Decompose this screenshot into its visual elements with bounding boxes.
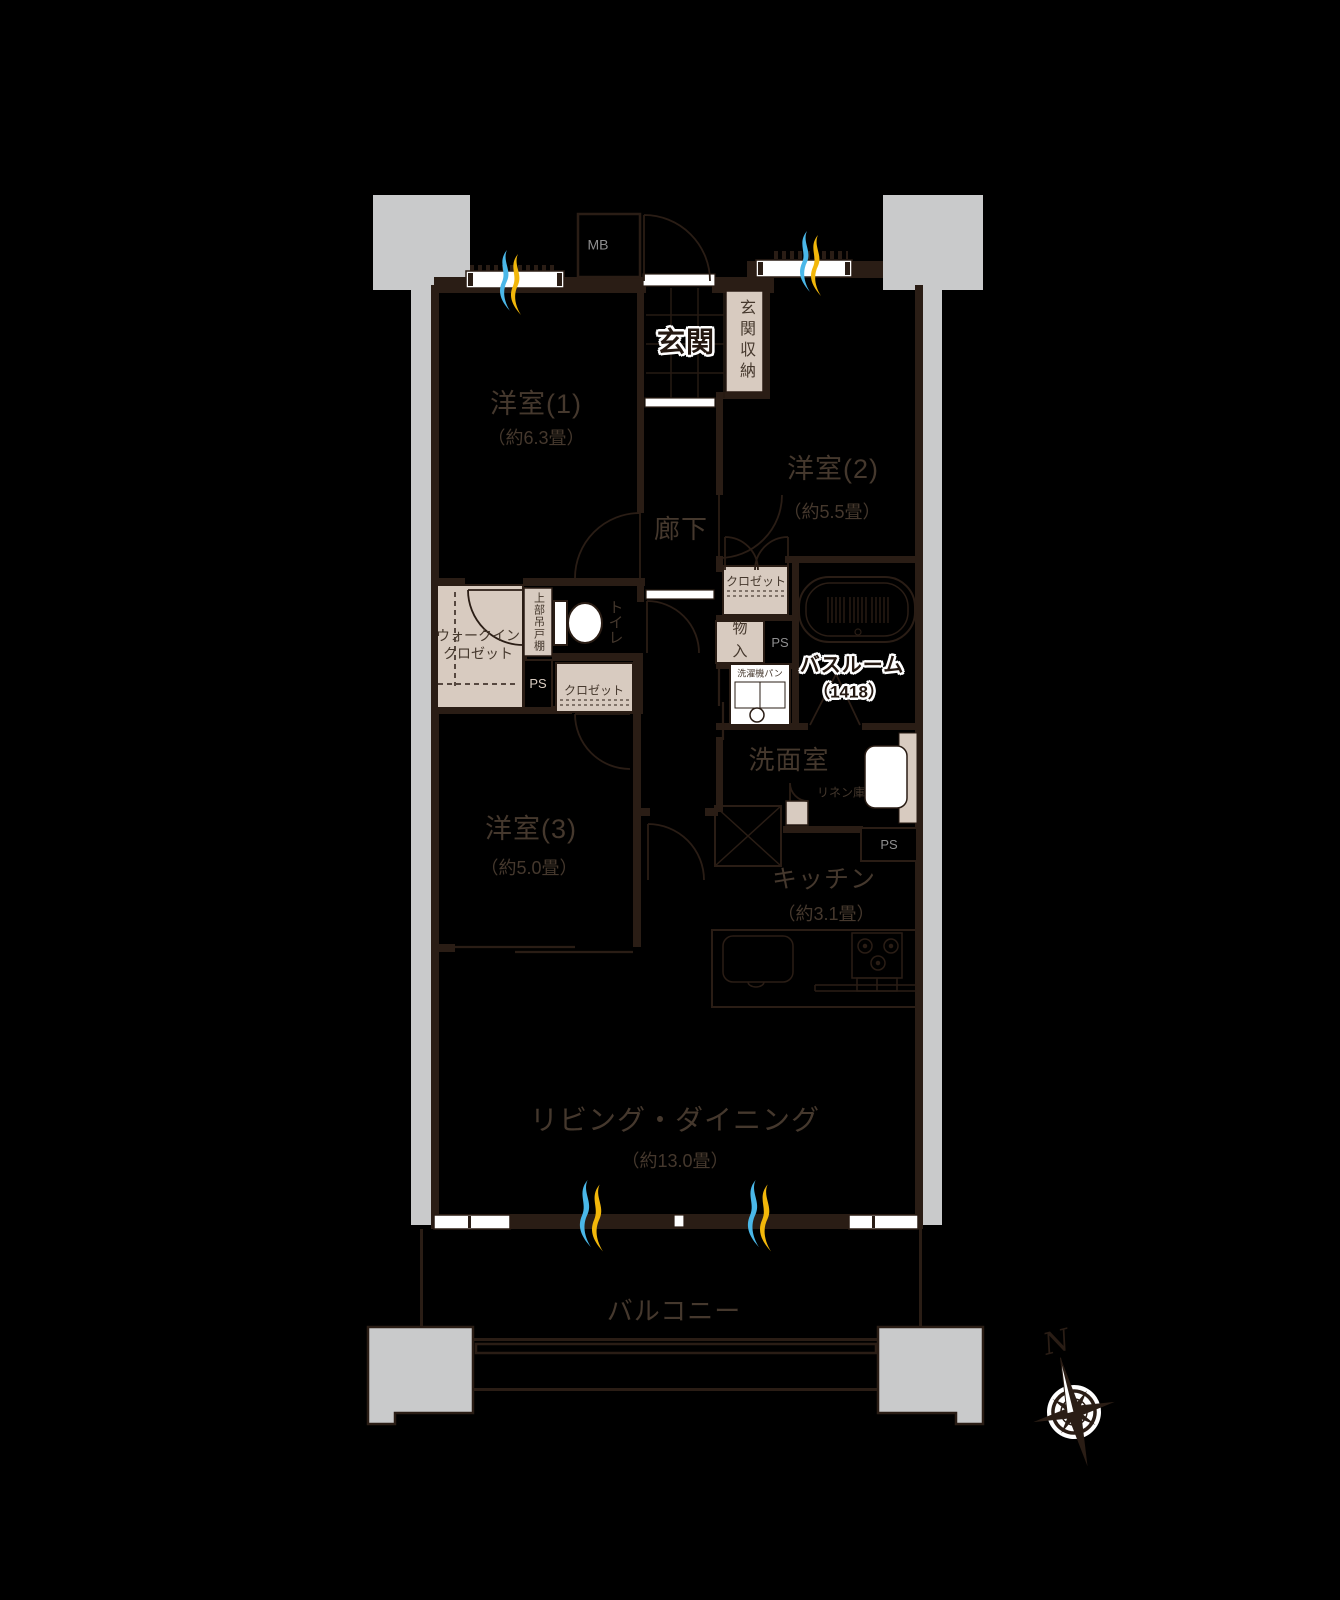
room-label-western1: 洋室(1) — [490, 388, 582, 422]
refrigerator-space — [715, 806, 781, 866]
storage-label-wic: ウォークイン クロゼット — [436, 628, 520, 663]
stove — [852, 933, 902, 991]
western1-door — [575, 513, 640, 578]
room-label-balcony: バルコニー — [607, 1295, 741, 1328]
room-size-western2: （約5.5畳） — [783, 501, 880, 524]
linen-box — [786, 801, 808, 825]
floorplan-drawing: N — [0, 0, 1340, 1600]
corridor-threshold — [646, 590, 714, 599]
kitchen-sink — [723, 936, 793, 982]
room-label-bathroom: バスルーム — [800, 654, 904, 679]
equipment-label-ps-bottom: PS — [880, 837, 897, 853]
window-stile — [674, 1215, 684, 1227]
exterior-strip-right — [920, 288, 942, 1225]
closet3-door — [575, 714, 630, 769]
toilet-door — [647, 601, 699, 653]
room-label-living-dining: リビング・ダイニング — [530, 1103, 820, 1138]
equipment-label-ps-mid: PS — [771, 635, 788, 651]
room-label-toilet: トイレ — [608, 600, 623, 645]
room-size-living-dining: （約13.0畳） — [621, 1150, 728, 1173]
window-sill-right — [849, 1215, 918, 1229]
equipment-label-washer-pan: 洗濯機パン — [737, 668, 782, 679]
pillar-top-left — [373, 195, 470, 290]
western3-sliding-door — [455, 947, 633, 952]
room-size-kitchen: （約3.1畳） — [777, 903, 874, 926]
airflow-symbols — [500, 231, 821, 1252]
room-label-washroom: 洗面室 — [748, 744, 829, 777]
pillars — [368, 195, 983, 1424]
linen-door — [790, 783, 808, 801]
window-sill-left — [434, 1215, 510, 1229]
entrance-threshold — [643, 274, 715, 286]
vanity-bowl — [865, 746, 907, 808]
storage-label-linen: リネン庫 — [817, 786, 865, 801]
equipment-label-mb: MB — [588, 236, 609, 254]
exterior-strip-left — [411, 288, 432, 1225]
closet2-box — [723, 566, 788, 615]
compass-rose: N — [1012, 1315, 1129, 1476]
room-label-entrance: 玄関 — [657, 325, 715, 360]
equipment-label-ps-left: PS — [529, 676, 546, 692]
living-door — [648, 824, 704, 880]
storage-label-upper-cabinet: 上部吊戸棚 — [533, 592, 544, 652]
pillar-bottom-right — [878, 1327, 983, 1424]
pillar-bottom-left — [368, 1327, 473, 1424]
floorplan-canvas: N 洋室(1) （約6.3畳） 洋室(2) （約5.5畳） 洋室(3) （約5.… — [0, 0, 1340, 1600]
toilet-fixture — [554, 601, 602, 645]
room-label-western3: 洋室(3) — [485, 813, 577, 847]
room-label-western2: 洋室(2) — [787, 453, 879, 487]
bathtub — [799, 577, 915, 642]
entrance-step — [645, 398, 715, 407]
kitchen-counter — [712, 930, 917, 1007]
compass-north-label: N — [1039, 1322, 1076, 1363]
room-label-corridor: 廊下 — [654, 513, 708, 546]
storage-label-monoire: 物入 — [732, 620, 747, 666]
room-size-bathroom: （1418） — [813, 681, 885, 702]
room-size-western3: （約5.0畳） — [480, 857, 577, 880]
storage-label-closet3: クロゼット — [564, 684, 624, 699]
pillar-top-right — [883, 195, 983, 290]
room-label-kitchen: キッチン — [772, 864, 876, 895]
storage-label-closet2: クロゼット — [726, 575, 786, 590]
room-size-western1: （約6.3畳） — [487, 427, 584, 450]
balcony-rail — [476, 1344, 876, 1353]
entrance-door — [644, 215, 710, 281]
storage-label-entrance-storage: 玄関収納 — [737, 299, 753, 383]
